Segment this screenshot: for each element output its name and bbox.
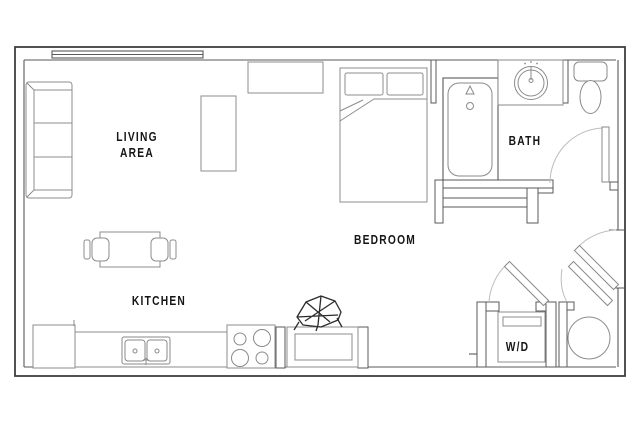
washer-dryer-unit xyxy=(498,312,545,362)
wall-bedroom-bath-stub xyxy=(431,60,436,103)
toilet xyxy=(574,62,607,114)
window-top xyxy=(52,51,203,58)
wall-kitchen-bedroom-stub xyxy=(358,327,368,368)
living-furniture xyxy=(26,62,323,198)
bath-door xyxy=(550,127,609,183)
label-living-line1: LIVING xyxy=(116,131,158,144)
label-living-line2: AREA xyxy=(120,147,154,160)
tv-console xyxy=(248,62,323,93)
wall-stub-stove xyxy=(276,327,285,368)
laundry-closet-door xyxy=(489,262,549,306)
floor-plan-svg: LIVING AREA KITCHEN BEDROOM BATH W/D xyxy=(0,0,640,432)
decor-object xyxy=(294,296,342,331)
dining-set xyxy=(84,232,176,267)
water-heater xyxy=(568,317,610,359)
bath-fixtures xyxy=(448,60,607,176)
coffee-table xyxy=(201,96,236,171)
label-wd: W/D xyxy=(506,341,530,354)
console-table xyxy=(435,180,553,223)
label-kitchen: KITCHEN xyxy=(132,295,186,308)
bed xyxy=(340,68,427,202)
refrigerator xyxy=(33,320,75,368)
sofa xyxy=(26,82,72,198)
bath-door-jamb xyxy=(610,182,618,190)
label-bedroom: BEDROOM xyxy=(354,234,416,247)
bedroom-furniture xyxy=(340,68,427,202)
doors xyxy=(489,127,619,306)
dining-chair-right xyxy=(151,238,176,261)
kitchen-fixtures xyxy=(33,296,358,368)
floor-plan-image: LIVING AREA KITCHEN BEDROOM BATH W/D xyxy=(0,0,640,432)
entry-door xyxy=(575,230,619,290)
kitchen-sink xyxy=(122,337,170,365)
bathtub xyxy=(448,83,492,176)
label-bath: BATH xyxy=(509,135,542,148)
vanity-sink xyxy=(498,60,563,105)
kitchen-island xyxy=(287,327,358,367)
utility-closet-door xyxy=(561,262,612,306)
pillow-right xyxy=(387,73,423,95)
dining-chair-left xyxy=(84,238,109,261)
pillow-left xyxy=(345,73,383,95)
stove xyxy=(227,325,275,368)
